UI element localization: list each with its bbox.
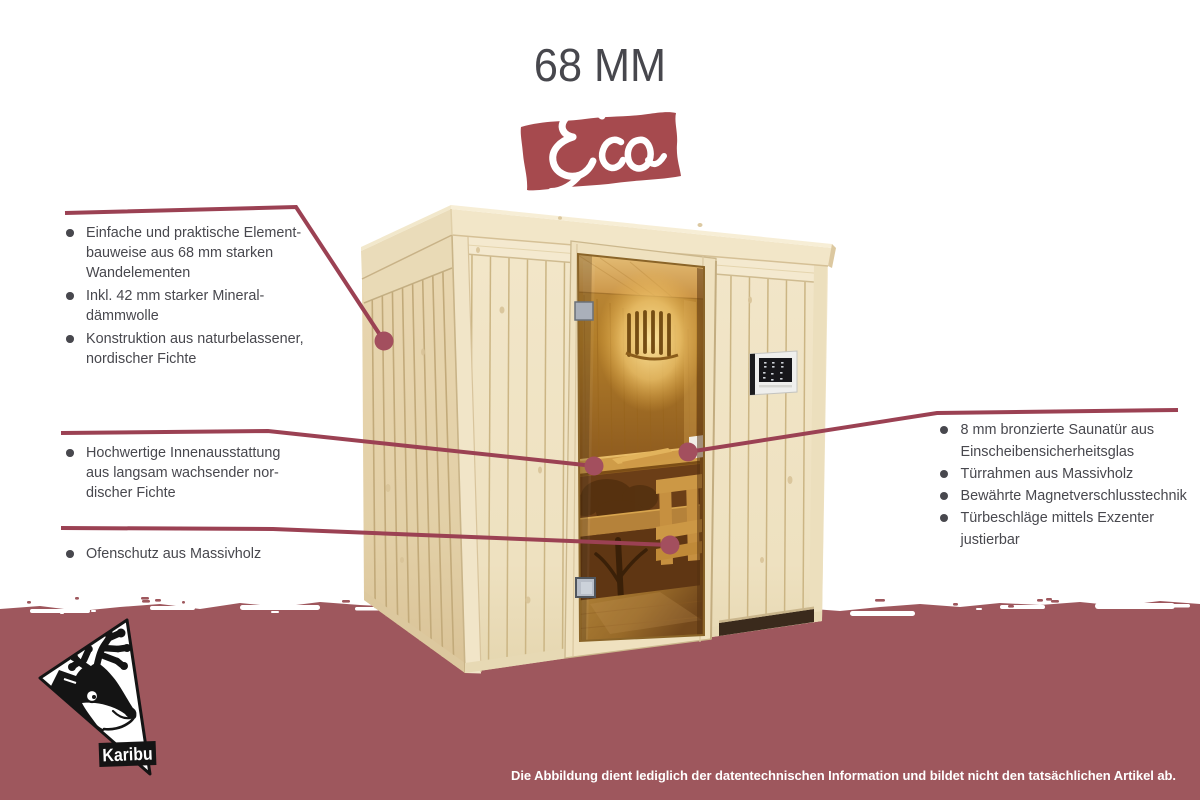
svg-text:Karibu: Karibu — [102, 744, 153, 766]
